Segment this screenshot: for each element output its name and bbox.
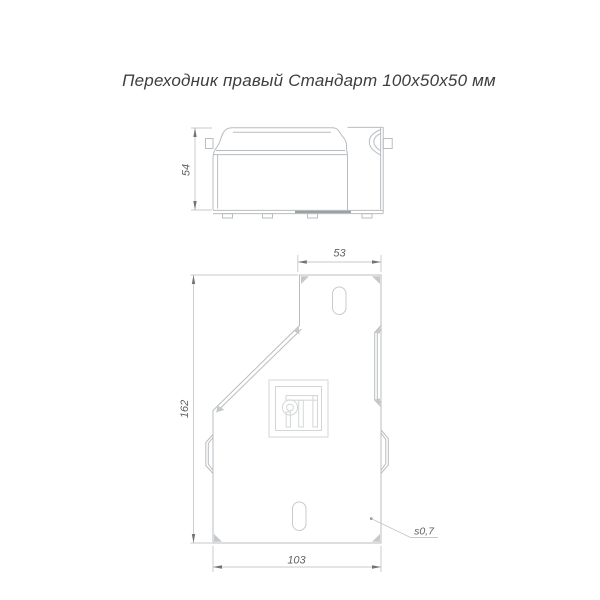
dimension-54-label: 54 (181, 164, 193, 176)
dimension-side-height: 54 (181, 128, 213, 210)
top-slot (333, 287, 347, 315)
plan-view: 53 162 103 (179, 248, 438, 573)
drawing-canvas: Переходник правый Стандарт 100х50х50 мм (0, 0, 600, 600)
dimension-top-width: 53 (298, 248, 381, 273)
side-right-tab (383, 139, 392, 149)
manufacturer-logo-icon (269, 380, 328, 437)
dimension-bottom-width: 103 (213, 546, 381, 572)
dimension-103-label: 103 (287, 555, 306, 567)
dimension-left-height: 162 (179, 275, 298, 543)
side-left-tab (206, 139, 214, 149)
side-profile-view: 54 (181, 127, 393, 218)
technical-drawing: 54 (0, 0, 600, 600)
dimension-162-label: 162 (179, 400, 191, 418)
dimension-53-label: 53 (333, 248, 346, 260)
thickness-note-label: s0,7 (414, 526, 435, 538)
bottom-slot (293, 502, 307, 531)
thickness-note: s0,7 (370, 517, 438, 537)
